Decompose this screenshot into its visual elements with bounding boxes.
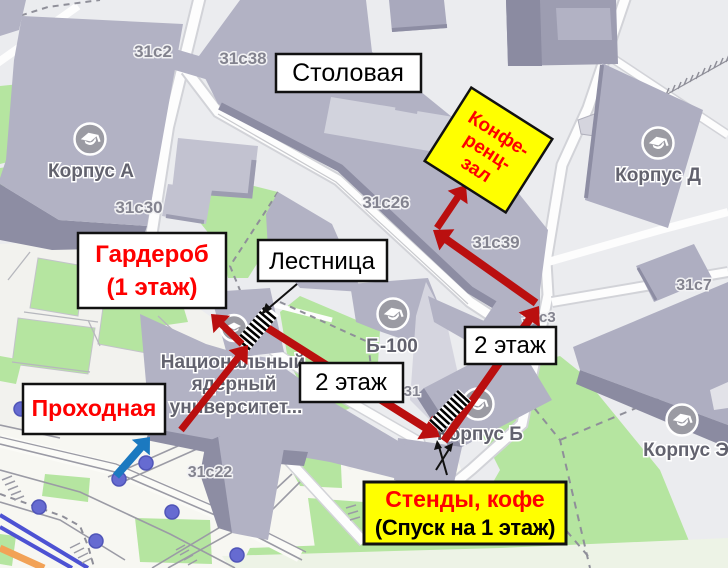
svg-text:31с22: 31с22 [188, 464, 233, 481]
svg-text:Стенды, кофе: Стенды, кофе [385, 486, 544, 512]
svg-text:Корпус А: Корпус А [48, 161, 134, 182]
svg-text:ядерный: ядерный [191, 374, 277, 395]
svg-text:31с38: 31с38 [219, 49, 266, 68]
svg-text:Корпус Д: Корпус Д [615, 165, 701, 186]
svg-text:Б-100: Б-100 [366, 336, 418, 357]
svg-text:31с39: 31с39 [472, 233, 519, 252]
svg-text:Гардероб: Гардероб [95, 241, 208, 268]
svg-text:31: 31 [404, 383, 421, 400]
svg-text:31с30: 31с30 [115, 198, 162, 217]
svg-text:Столовая: Столовая [292, 59, 404, 87]
svg-text:31с26: 31с26 [362, 193, 409, 212]
svg-text:31с2: 31с2 [134, 42, 172, 61]
svg-text:31с7: 31с7 [676, 277, 712, 294]
svg-text:(Спуск на 1 этаж): (Спуск на 1 этаж) [375, 515, 555, 540]
svg-text:2 этаж: 2 этаж [474, 332, 546, 359]
svg-text:Корпус Э: Корпус Э [643, 440, 728, 461]
svg-text:Проходная: Проходная [32, 395, 157, 421]
svg-text:(1 этаж): (1 этаж) [106, 274, 197, 301]
svg-text:Лестница: Лестница [269, 248, 375, 275]
svg-text:2 этаж: 2 этаж [315, 369, 387, 396]
